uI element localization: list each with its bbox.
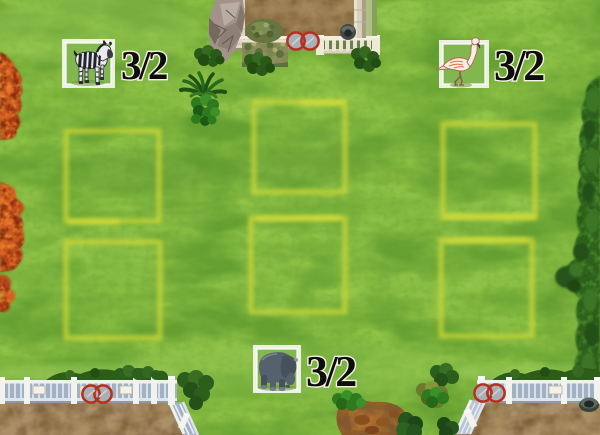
svg-text:3/2: 3/2 [121,42,167,88]
svg-text:3/2: 3/2 [306,347,356,396]
svg-text:3/2: 3/2 [494,41,544,90]
